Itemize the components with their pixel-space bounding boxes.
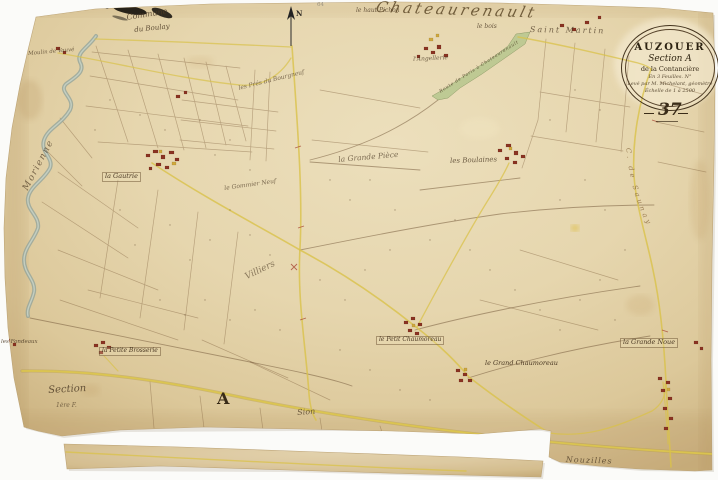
- place-grand-chaumoreau: le Grand Chaumoreau: [485, 360, 558, 367]
- map-section: Section A: [648, 54, 692, 64]
- place-la-gautrie: la Gautrie: [102, 172, 141, 182]
- place-petit-chaumoreau: le Petit Chaumoreau: [376, 336, 444, 345]
- pencil-mark: 64: [317, 3, 324, 9]
- sheet-number-underline: [656, 121, 678, 122]
- map-scale: Échelle de 1 à 2500: [645, 88, 695, 94]
- sheet-number-value: 37: [658, 100, 682, 120]
- north-letter: N: [296, 10, 302, 17]
- map-surveyor: Levé par M. Michelant, géomètre: [627, 81, 712, 87]
- place-grande-noue: la Grande Noue: [620, 338, 678, 348]
- place-sion: Sion: [297, 408, 316, 417]
- sheet-note: 1ère F.: [56, 403, 77, 409]
- place-le-bois: le bois: [477, 24, 497, 30]
- sheet-number-dash: [678, 113, 688, 114]
- map-drawing: Route de Paris à Chateaurenault: [0, 0, 718, 480]
- map-title: AUZOUER: [634, 42, 705, 53]
- section-script: Section: [48, 384, 87, 396]
- map-territory: de la Contancière: [641, 65, 699, 73]
- sheet-number-dash: [644, 113, 654, 114]
- cadastral-map-scan: Route de Paris à Chateaurenault: [0, 0, 718, 480]
- place-fondeaux: les Fondeaux: [1, 340, 38, 346]
- paper-sheets: [4, 2, 715, 477]
- sheet-number: 37: [644, 100, 688, 124]
- title-cartouche-inner-ring: AUZOUER Section A de la Contancière En 3…: [625, 29, 715, 107]
- place-petite-brosserie: la Petite Brosserie: [99, 347, 161, 356]
- section-letter-a: A: [217, 391, 229, 407]
- title-cartouche: AUZOUER Section A de la Contancière En 3…: [621, 25, 718, 111]
- map-sheets-note: En 3 Feuilles. N°: [649, 74, 692, 80]
- neighbor-nouzilles: Nouzilles: [566, 456, 613, 466]
- place-saint-martin: Saint Martin: [530, 26, 606, 35]
